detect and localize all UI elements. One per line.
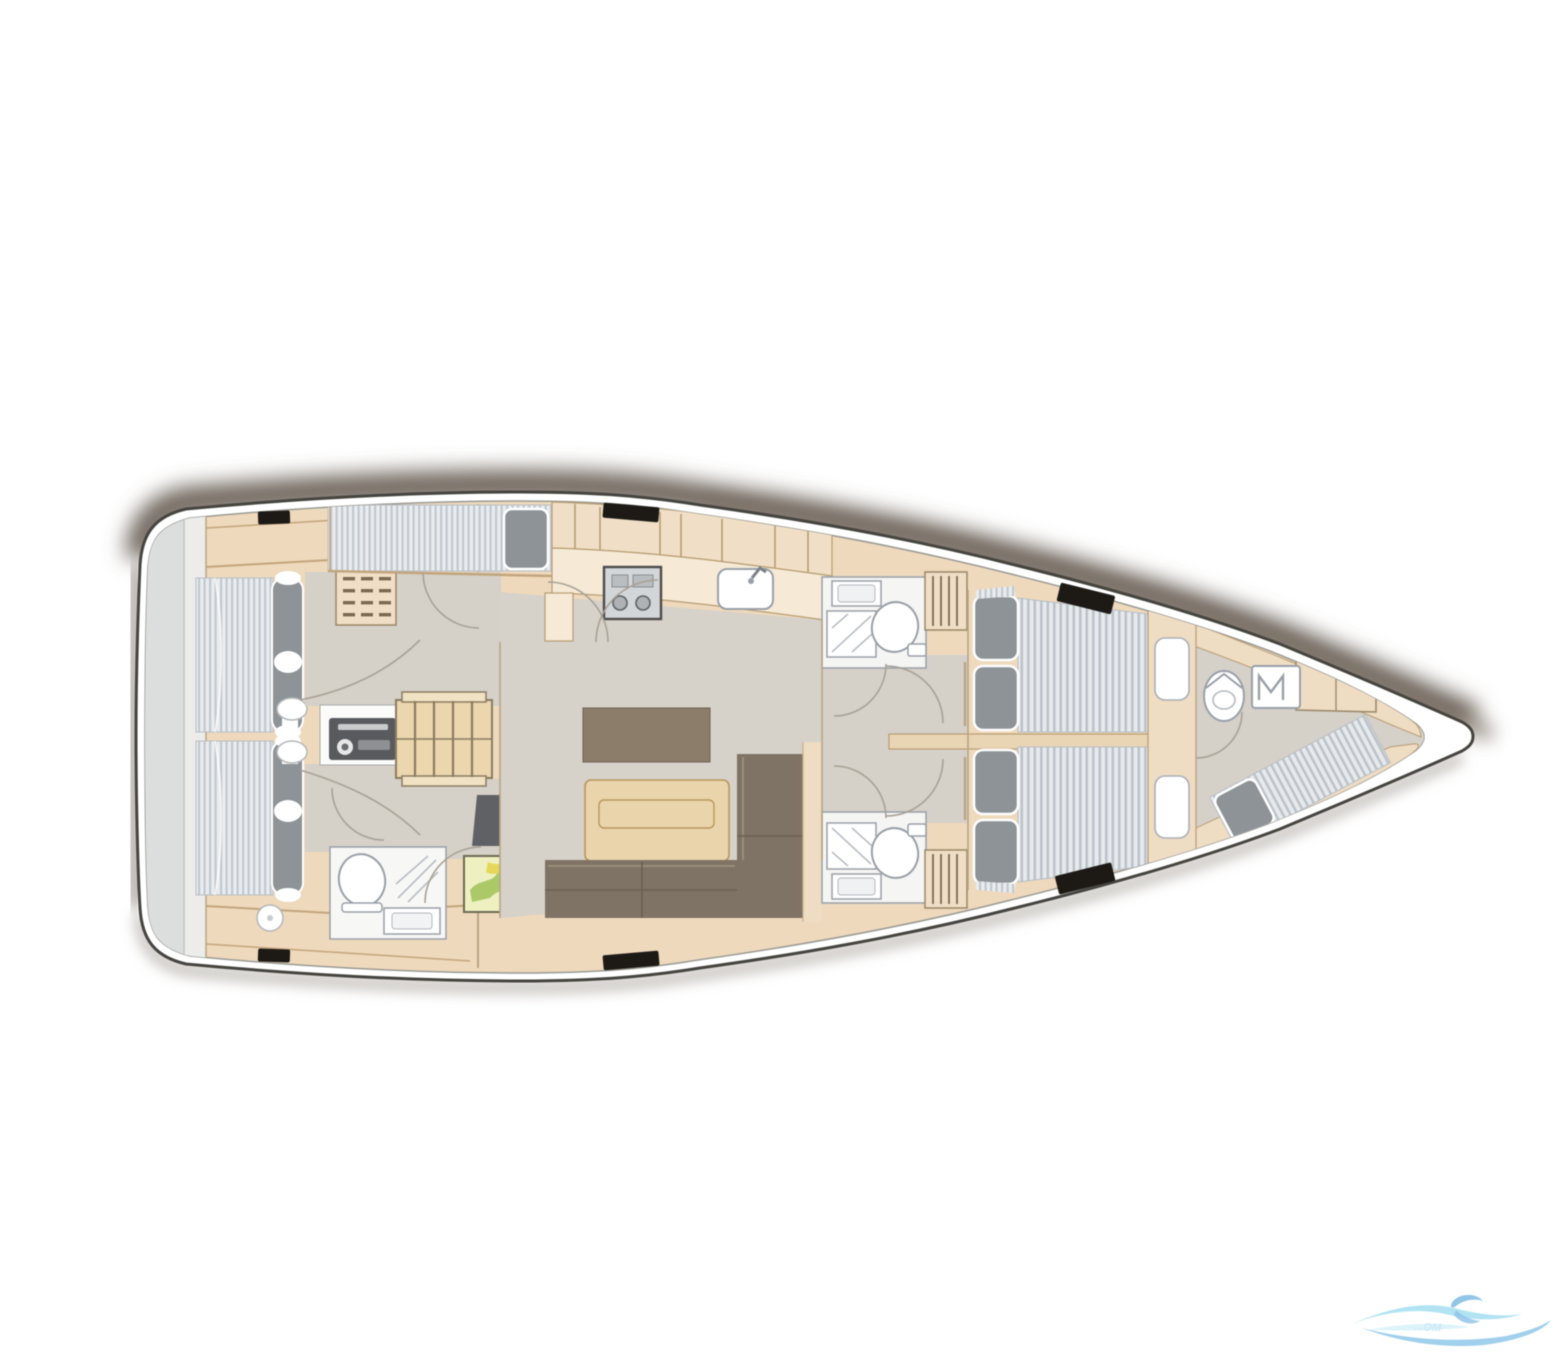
svg-text:...OM: ...OM: [1414, 1321, 1442, 1334]
